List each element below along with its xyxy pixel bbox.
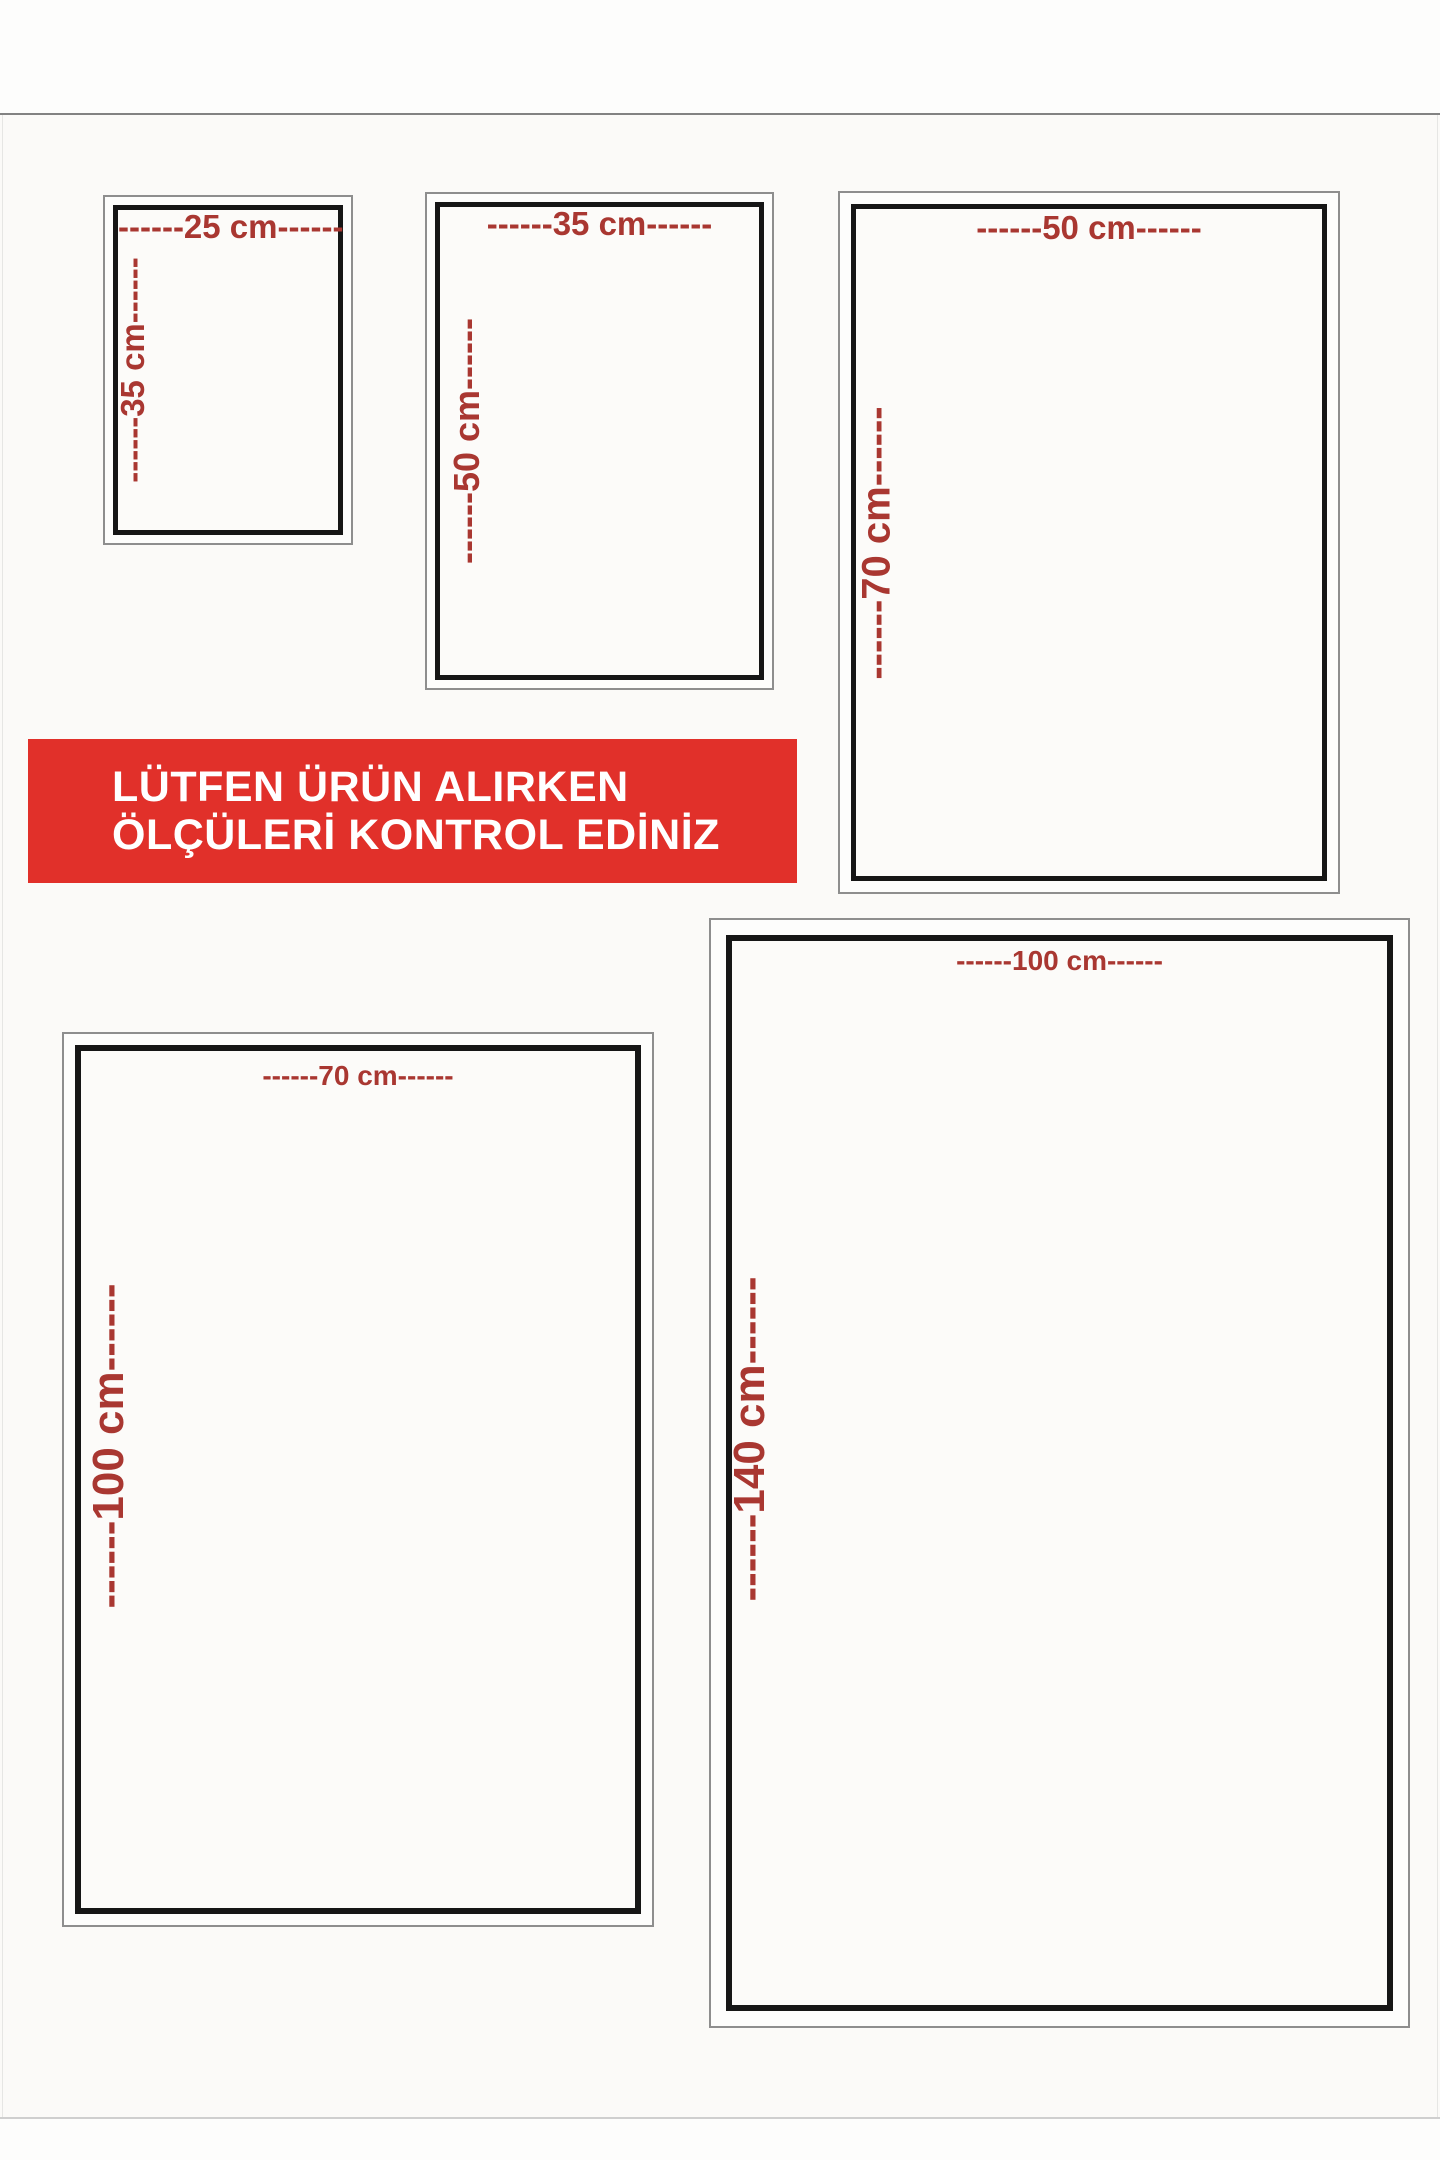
width-dimension-label: ------70 cm------ [81, 1059, 635, 1093]
page-left-edge [2, 115, 3, 2117]
size-box-35x50-inner-frame: ------35 cm------ ------50 cm------ [435, 202, 764, 680]
height-dimension-label: ------70 cm------ [855, 406, 900, 679]
size-box-25x35-inner-frame: ------25 cm------ ------35 cm------ [113, 205, 343, 535]
size-box-70x100-inner-frame: ------70 cm------ ------100 cm------ [75, 1045, 641, 1914]
width-dimension-label: ------50 cm------ [856, 209, 1322, 247]
width-dimension-label: ------100 cm------ [732, 944, 1387, 978]
height-dimension-label: ------35 cm------ [114, 257, 152, 482]
warning-banner-line2: ÖLÇÜLERİ KONTROL EDİNİZ [112, 811, 797, 859]
height-dimension-label: ------140 cm------ [725, 1276, 775, 1601]
height-dimension-label: ------50 cm------ [446, 318, 488, 564]
page-bottom-edge [0, 2117, 1440, 2119]
size-box-50x70: ------50 cm------ ------70 cm------ [838, 191, 1340, 894]
size-chart-image: ------25 cm------ ------35 cm------ ----… [0, 0, 1440, 2160]
size-box-100x140: ------100 cm------ ------140 cm------ [709, 918, 1410, 2028]
page-right-edge [1437, 115, 1438, 2117]
height-dimension-label: ------100 cm------ [84, 1283, 134, 1608]
size-box-25x35: ------25 cm------ ------35 cm------ [103, 195, 353, 545]
size-box-35x50: ------35 cm------ ------50 cm------ [425, 192, 774, 690]
size-box-70x100: ------70 cm------ ------100 cm------ [62, 1032, 654, 1927]
warning-banner-line1: LÜTFEN ÜRÜN ALIRKEN [112, 763, 797, 811]
size-box-50x70-inner-frame: ------50 cm------ ------70 cm------ [851, 204, 1327, 881]
measurement-warning-banner: LÜTFEN ÜRÜN ALIRKEN ÖLÇÜLERİ KONTROL EDİ… [28, 739, 797, 883]
page-top-edge [0, 113, 1440, 115]
size-box-100x140-inner-frame: ------100 cm------ ------140 cm------ [726, 935, 1393, 2011]
width-dimension-label: ------25 cm------ [118, 208, 338, 246]
width-dimension-label: ------35 cm------ [440, 205, 759, 243]
